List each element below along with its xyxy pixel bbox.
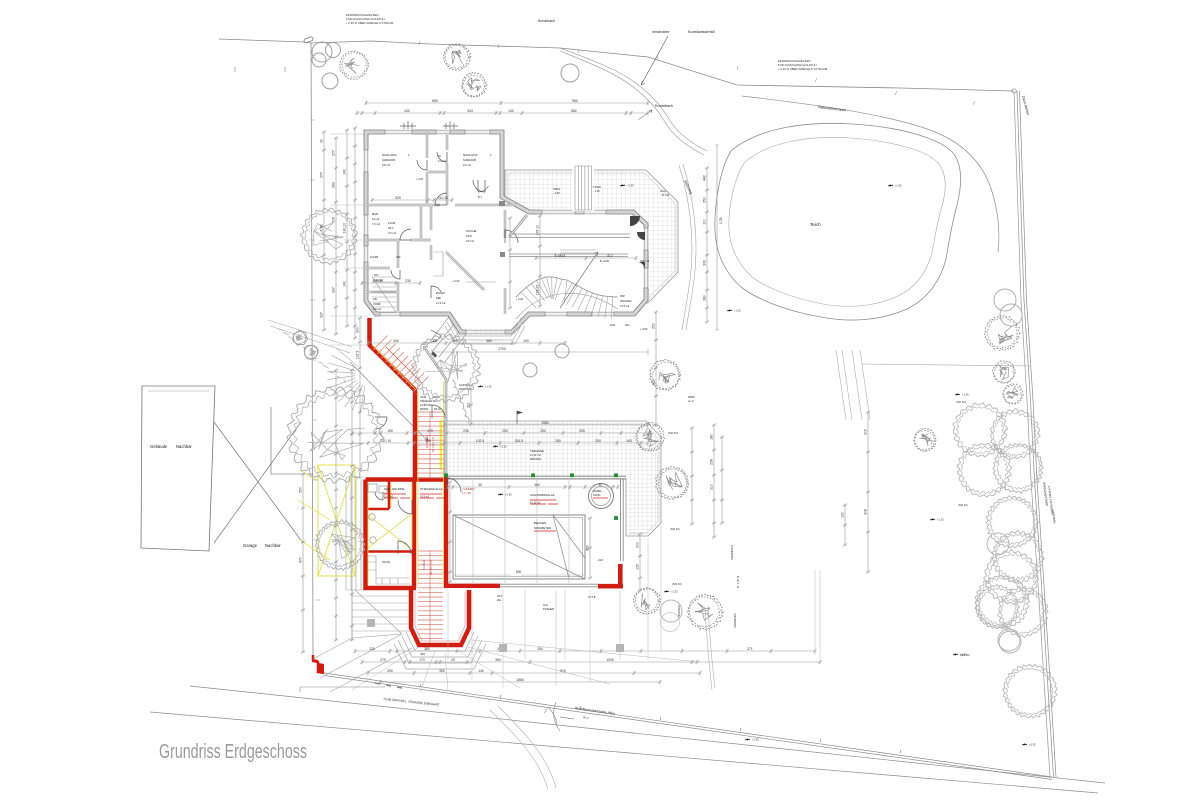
svg-text:WC: WC — [374, 273, 379, 277]
svg-text:Kunstwasserfall: Kunstwasserfall — [688, 30, 715, 34]
svg-text:100: 100 — [452, 339, 458, 343]
svg-text:10CKB: 10CKB — [370, 255, 378, 259]
svg-text:277: 277 — [332, 150, 336, 156]
svg-text:2.4 m2: 2.4 m2 — [438, 159, 446, 163]
svg-text:337: 337 — [320, 312, 324, 318]
svg-text:SWILBETEN: SWILBETEN — [534, 526, 551, 530]
svg-text:ESSZI.: ESSZI. — [436, 291, 446, 295]
svg-text:320: 320 — [395, 196, 401, 200]
svg-text:- 1.35: - 1.35 — [553, 191, 560, 195]
svg-text:SP 1: SP 1 — [388, 226, 394, 230]
svg-text:230: 230 — [405, 279, 411, 283]
svg-text:+ 0,40 M ÜBER ZWEIGELS: + 0,40 M ÜBER ZWEIGELS STRAUM — [346, 21, 394, 25]
svg-text:9.3 m2: 9.3 m2 — [463, 163, 471, 167]
svg-text:380: 380 — [424, 647, 430, 651]
svg-text:9.9 m2: 9.9 m2 — [466, 239, 474, 243]
svg-text:250: 250 — [540, 429, 546, 433]
svg-text:+ 0.00: + 0.00 — [452, 279, 460, 283]
svg-text:224: 224 — [598, 558, 603, 562]
svg-text:BAD: BAD — [372, 212, 379, 216]
svg-text:SAUN.: SAUN. — [382, 560, 391, 564]
svg-text:LICH: LICH — [660, 189, 666, 193]
svg-text:+1.35: +1.35 — [962, 393, 969, 397]
svg-text:137: 137 — [432, 339, 438, 343]
svg-text:147,10: 147,10 — [536, 225, 540, 235]
svg-text:LIFT: LIFT — [497, 594, 503, 598]
svg-text:+1.35: +1.35 — [627, 184, 634, 188]
svg-text:430: 430 — [404, 109, 410, 113]
svg-text:47.8 m2: 47.8 m2 — [620, 304, 630, 308]
svg-text:7.9 m2: 7.9 m2 — [372, 222, 380, 226]
svg-text:(NR 40): (NR 40) — [960, 653, 970, 657]
svg-text:150: 150 — [387, 429, 393, 433]
svg-text:- 1.35: - 1.35 — [593, 189, 600, 193]
svg-text:SCHWIMMHALLE: SCHWIMMHALLE — [530, 493, 555, 497]
svg-text:B 480A: B 480A — [554, 254, 566, 258]
svg-text:265: 265 — [579, 429, 585, 433]
svg-text:442: 442 — [703, 175, 707, 181]
svg-text:Teich: Teich — [810, 222, 821, 227]
svg-text:+ 0,40 M ÜBER ZWEIGELS: + 0,40 M ÜBER ZWEIGELS TOTRAUM — [778, 67, 828, 71]
svg-text:STIEGENHALLE: STIEGENHALLE — [420, 487, 443, 491]
svg-text:TERASSE: TERASSE — [530, 449, 544, 453]
svg-text:(NR 40): (NR 40) — [668, 431, 678, 435]
svg-text:190: 190 — [425, 439, 431, 443]
svg-text:+1.35: +1.35 — [485, 385, 492, 389]
svg-text:DMGEHALTET: DMGEHALTET — [420, 399, 438, 403]
svg-text:(NR 40): (NR 40) — [958, 503, 968, 507]
svg-text:SAN. GRUPPE: SAN. GRUPPE — [384, 487, 405, 491]
svg-text:WDNR: WDNR — [420, 407, 428, 411]
svg-text:21.3 m2: 21.3 m2 — [436, 301, 446, 305]
svg-text:360: 360 — [534, 483, 540, 487]
svg-text:135: 135 — [636, 564, 640, 570]
svg-text:193,25: 193,25 — [536, 285, 540, 295]
svg-text:verdeckter: verdeckter — [652, 30, 670, 34]
svg-text:254: 254 — [537, 647, 543, 651]
svg-text:850: 850 — [432, 99, 438, 103]
svg-text:170: 170 — [419, 658, 425, 662]
svg-text:18 / 31 / 7.8: 18 / 31 / 7.8 — [431, 437, 435, 452]
svg-text:682: 682 — [571, 109, 577, 113]
svg-text:306: 306 — [703, 260, 707, 266]
svg-text:100: 100 — [523, 339, 529, 343]
svg-text:FLUR: FLUR — [388, 221, 395, 225]
svg-text:Kunstbach: Kunstbach — [655, 104, 673, 108]
svg-text:140: 140 — [478, 669, 484, 673]
svg-text:Grundriss Erdgeschoss: Grundriss Erdgeschoss — [159, 741, 307, 763]
svg-text:30: 30 — [478, 483, 482, 487]
svg-text:970: 970 — [299, 557, 303, 563]
svg-text:110: 110 — [703, 219, 707, 225]
svg-text:B +0.00: B +0.00 — [600, 259, 610, 263]
svg-text:334: 334 — [467, 109, 473, 113]
svg-text:137.5: 137.5 — [356, 351, 360, 360]
svg-text:WESTEN: WESTEN — [530, 457, 541, 461]
svg-text:1700: 1700 — [498, 347, 506, 351]
svg-text:SHWGFRS: SHWGFRS — [382, 158, 396, 162]
svg-text:140: 140 — [508, 109, 514, 113]
svg-text:18 / 27 / 2.5: 18 / 27 / 2.5 — [429, 560, 433, 575]
svg-text:200: 200 — [636, 542, 640, 548]
svg-text:WZ: WZ — [620, 294, 625, 298]
svg-text:- T1 2 B: - T1 2 B — [660, 193, 669, 197]
svg-text:+1.35: +1.35 — [895, 184, 902, 188]
svg-text:250: 250 — [595, 439, 601, 443]
svg-text:(NR 40): (NR 40) — [670, 527, 680, 531]
svg-text:ca. 0.: ca. 0. — [688, 399, 695, 403]
svg-text:220: 220 — [369, 647, 375, 651]
svg-text:360: 360 — [439, 669, 445, 673]
svg-text:258: 258 — [710, 459, 714, 465]
svg-text:250: 250 — [652, 323, 656, 329]
svg-text:NRW: NRW — [688, 395, 695, 399]
svg-text:Kunstbach: Kunstbach — [538, 19, 555, 23]
svg-text:VORR.: VORR. — [373, 302, 381, 306]
svg-text:1580: 1580 — [541, 421, 549, 425]
svg-text:+ 0.00: + 0.00 — [516, 298, 524, 301]
svg-text:300: 300 — [356, 327, 360, 333]
svg-text:1580: 1580 — [516, 678, 524, 682]
svg-text:41 32 m2: 41 32 m2 — [530, 502, 541, 505]
svg-text:290: 290 — [387, 669, 393, 673]
svg-text:+1.35: +1.35 — [1029, 743, 1036, 747]
svg-text:230: 230 — [396, 255, 401, 259]
svg-text:+1.35: +1.35 — [734, 309, 741, 313]
svg-text:SHWGFRS: SHWGFRS — [463, 158, 477, 162]
svg-text:205: 205 — [463, 429, 469, 433]
svg-text:550: 550 — [299, 487, 303, 493]
svg-text:140: 140 — [343, 169, 347, 175]
svg-text:41 32 m2: 41 32 m2 — [530, 453, 541, 457]
svg-text:200: 200 — [652, 379, 656, 385]
svg-text:SCHLAFZI: SCHLAFZI — [382, 153, 397, 157]
svg-text:Gebäude: Gebäude — [150, 444, 168, 449]
svg-text:950: 950 — [572, 99, 578, 103]
svg-text:30: 30 — [598, 483, 602, 487]
svg-text:ShKA: ShKA — [553, 187, 560, 191]
svg-text:B 1: B 1 — [478, 196, 482, 199]
svg-text:380: 380 — [486, 339, 492, 343]
svg-text:B - 1.00 M: B - 1.00 M — [736, 576, 740, 588]
svg-text:10 B2 WZ: 10 B2 WZ — [420, 403, 432, 407]
svg-text:Nachbar: Nachbar — [265, 543, 281, 548]
svg-text:+1.35: +1.35 — [937, 518, 944, 522]
svg-text:251.5: 251.5 — [515, 439, 524, 443]
svg-text:TRNN: TRNN — [593, 185, 601, 189]
svg-text:1,9B: 1,9B — [320, 224, 324, 232]
svg-text:221: 221 — [467, 402, 471, 408]
svg-text:250: 250 — [555, 439, 561, 443]
svg-text:SIAUBETEN: SIAUBETEN — [730, 545, 734, 560]
svg-text:+1.35: +1.35 — [671, 590, 678, 594]
svg-text:1,7B: 1,7B — [719, 217, 723, 224]
svg-text:270: 270 — [380, 658, 386, 662]
svg-text:250: 250 — [502, 429, 508, 433]
svg-text:ECK: ECK — [610, 323, 616, 327]
svg-text:POOL: POOL — [593, 493, 601, 497]
svg-text:3.0 m2: 3.0 m2 — [388, 231, 396, 235]
svg-text:360: 360 — [495, 658, 501, 662]
svg-text:102.5: 102.5 — [476, 439, 485, 443]
svg-text:(NR 40): (NR 40) — [956, 400, 966, 404]
svg-text:EBK: EBK — [436, 296, 441, 300]
svg-text:100,30: 100,30 — [373, 279, 383, 283]
svg-text:490: 490 — [586, 545, 590, 551]
svg-text:277: 277 — [320, 172, 324, 178]
svg-text:(NR 40): (NR 40) — [672, 582, 682, 586]
svg-text:AR: AR — [373, 297, 377, 301]
svg-text:250: 250 — [703, 197, 707, 203]
svg-text:KÜCHE: KÜCHE — [466, 229, 477, 233]
svg-text:WOHNZI.: WOHNZI. — [620, 299, 632, 303]
svg-text:10 B m2: 10 B m2 — [420, 496, 430, 499]
svg-text:380: 380 — [420, 652, 425, 656]
svg-text:263: 263 — [332, 182, 336, 188]
svg-text:VZ10: VZ10 — [420, 395, 427, 399]
svg-text:B 2: B 2 — [607, 254, 612, 258]
svg-text:20+: 20+ — [497, 598, 502, 602]
svg-text:SCHLAFZI: SCHLAFZI — [463, 153, 478, 157]
svg-text:10.5 B: 10.5 B — [588, 595, 596, 599]
svg-text:Nachbar: Nachbar — [176, 444, 192, 449]
svg-text:+1.35: +1.35 — [500, 445, 507, 449]
svg-text:130: 130 — [841, 512, 845, 518]
svg-text:206: 206 — [332, 217, 336, 223]
svg-text:DI: DI — [438, 154, 441, 158]
svg-text:180: 180 — [710, 434, 714, 440]
svg-text:+1.35: +1.35 — [505, 493, 512, 497]
svg-text:WLAL: WLAL — [434, 407, 442, 411]
svg-text:210: 210 — [710, 484, 714, 490]
svg-text:+ 0.50: + 0.50 — [640, 327, 648, 331]
svg-text:308: 308 — [864, 509, 868, 515]
svg-text:140: 140 — [343, 281, 347, 287]
svg-text:6.0 m2: 6.0 m2 — [373, 307, 381, 311]
svg-text:271: 271 — [747, 647, 753, 651]
svg-text:280: 280 — [703, 295, 707, 301]
svg-text:9.8 m2: 9.8 m2 — [382, 163, 390, 167]
svg-text:10 m2: 10 m2 — [372, 217, 380, 221]
svg-text:GVL: GVL — [543, 603, 549, 607]
svg-text:POSHER: POSHER — [543, 607, 554, 611]
svg-text:215: 215 — [864, 429, 868, 435]
svg-text:163: 163 — [626, 439, 632, 443]
svg-text:Garage: Garage — [243, 543, 258, 548]
svg-text:9 HÖHE: 9 HÖHE — [422, 559, 426, 570]
svg-text:30: 30 — [320, 139, 324, 143]
svg-text:+ 0.00: + 0.00 — [416, 178, 424, 181]
svg-text:110,10: 110,10 — [438, 196, 448, 200]
svg-text:KR 8.: KR 8. — [466, 234, 473, 238]
svg-text:340: 340 — [393, 339, 399, 343]
svg-text:800: 800 — [516, 570, 522, 574]
svg-text:BECKEN: BECKEN — [534, 521, 546, 525]
svg-text:SIAUBETEN: SIAUBETEN — [733, 613, 737, 628]
svg-text:WG: WG — [625, 323, 629, 327]
svg-text:110 10: 110 10 — [381, 439, 391, 443]
svg-text:170: 170 — [427, 429, 433, 433]
svg-text:17 / 28: 17 / 28 — [462, 491, 471, 495]
svg-text:NR. 1 B: NR. 1 B — [640, 259, 649, 263]
svg-text:1030: 1030 — [606, 658, 614, 662]
svg-text:20: 20 — [451, 658, 455, 662]
svg-text:140,10: 140,10 — [343, 223, 347, 233]
svg-text:18 B m2: 18 B m2 — [384, 496, 394, 499]
svg-text:337: 337 — [332, 287, 336, 293]
svg-text:+1.35: +1.35 — [752, 738, 759, 742]
